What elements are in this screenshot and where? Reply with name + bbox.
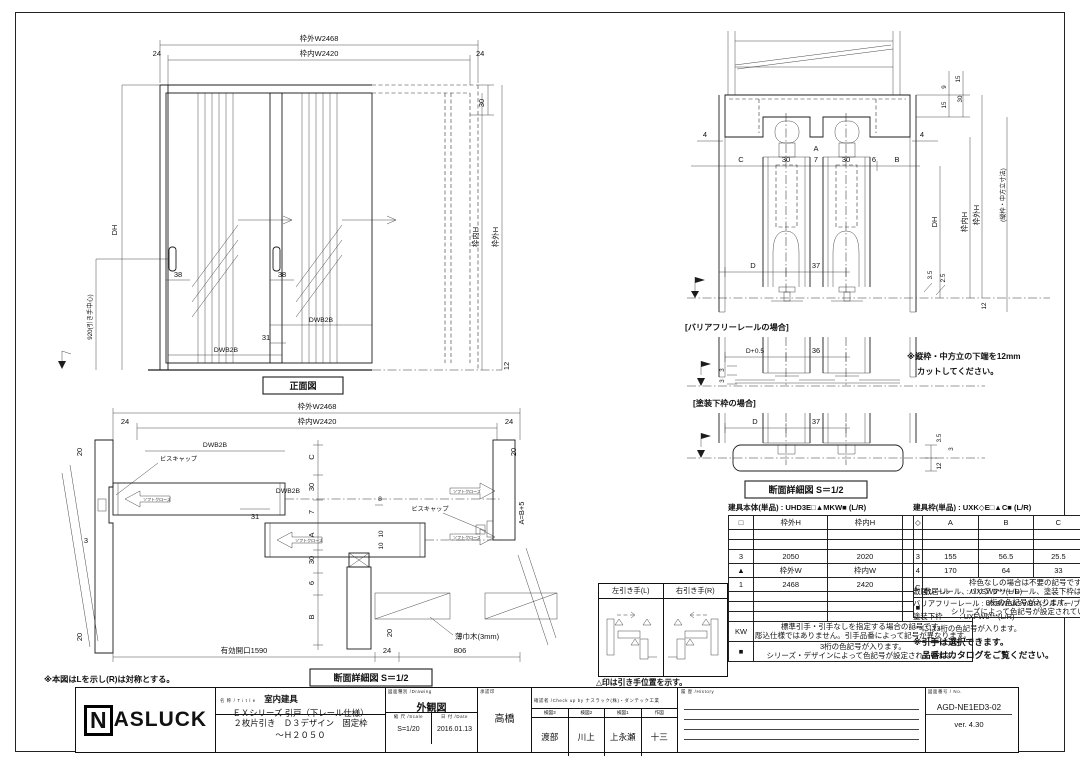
front-pull-center: 920(引き手中心) [86, 294, 94, 339]
handle-box-header: 左引き手(L) 右引き手(R) [599, 584, 727, 599]
front-uchi-h: 枠内H [470, 227, 480, 247]
front-soto-h: 枠外H [490, 227, 500, 247]
plan-outer-width: 枠外W2468 [298, 401, 337, 411]
sec-dim-25: 2.5 [940, 273, 947, 282]
plan-opening: 有効開口1590 [221, 645, 268, 655]
drawing-type-label: 図面種別 /Drawing [386, 688, 477, 695]
sec-dim-12a: 12 [981, 302, 988, 309]
plan-relation: A=B+5 [517, 502, 526, 525]
title-block: NASLUCK 名 称 / T i t l e 室内建具 ＥＸシリーズ 引戸（下… [75, 687, 1019, 753]
sec-note-1: ※縦枠・中方立の下端を12mm [907, 351, 1021, 361]
checkers-cell: 確認者 /Check up by ナスラック(株)・ダンテック工業 検図3 渡部… [532, 688, 678, 752]
history-label: 履 歴 /History [678, 688, 925, 696]
sec-chain-a: A [813, 144, 818, 153]
sec-fl-marker-1 [691, 277, 705, 298]
sec-dim-35b: 3.5 [936, 433, 943, 442]
drawing-sheet: 枠外W2468 枠内W2420 24 24 [0, 0, 1080, 763]
plan-dim-31: 31 [251, 512, 259, 521]
plan-baseboard-label: 薄巾木(3mm) [455, 631, 500, 641]
plan-chain-c: C [307, 454, 316, 460]
handle-position-box: 左引き手(L) 右引き手(R) [598, 583, 728, 677]
handle-right-label: 右引き手(R) [664, 584, 728, 598]
drawing-type-cell: 図面種別 /Drawing 外観図 縮 尺 /Scale S=1/20 日 付 … [386, 688, 478, 752]
plan-10-b: 10 [378, 542, 385, 549]
sec-dim-3a: 3 [719, 368, 726, 372]
logo-cell: NASLUCK [76, 688, 216, 752]
checker-col-2: 検図2 川上 [569, 709, 606, 756]
sec-dim-15b: 15 [955, 75, 962, 82]
sec-dim-15a: 15 [941, 101, 948, 108]
front-left-dims: DH 920(引き手中心) [86, 85, 169, 370]
front-caption: 正面図 [289, 381, 316, 391]
product-height: ～Ｈ２０５０ [220, 729, 381, 741]
handle-diagram-left [599, 599, 664, 676]
front-dim-lines [160, 40, 478, 85]
sec-chain-6: 6 [872, 155, 876, 164]
front-frame [148, 85, 502, 370]
sec-top-structure [728, 31, 900, 95]
sec-dim-d2: D [752, 417, 758, 426]
front-dim-38a: 38 [174, 270, 182, 279]
approval-label: 承認印 [478, 688, 531, 696]
front-dim-24-left: 24 [153, 49, 161, 58]
checker-col-3: 検図3 渡部 [532, 709, 569, 756]
sec-dim-35a: 3.5 [927, 270, 934, 279]
product-category: 室内建具 [264, 694, 298, 704]
approval-cell: 承認印 高橋 [478, 688, 532, 752]
sec-chain-7: 7 [814, 155, 818, 164]
front-dim-31: 31 [262, 333, 270, 342]
frame-col-c: C [1033, 516, 1080, 530]
front-door-panel-1 [166, 93, 282, 363]
logo-n-box: N [84, 705, 113, 736]
plan-dim-3: 3 [84, 536, 88, 545]
frame-col-a: A [922, 516, 978, 530]
front-dim-24-right: 24 [476, 49, 484, 58]
catalog-note: 品番はカタログをご覧ください。 [913, 651, 1080, 660]
scale-cell: 縮 尺 /Scale S=1/20 [386, 713, 432, 744]
plan-20-c: 20 [509, 448, 518, 456]
sec-jambs [719, 95, 916, 312]
body-col-1: 枠外H [754, 516, 828, 530]
plan-softclose-3: ソフトクローズ [453, 488, 481, 494]
sec-chain-b: B [894, 155, 899, 164]
sec-soto-h: 枠外H [971, 205, 981, 225]
sec-chain-30a: 30 [782, 155, 790, 164]
plan-door-1 [113, 483, 285, 515]
scale-value: S=1/20 [386, 726, 431, 733]
sec-chain-30b: 30 [842, 155, 850, 164]
plan-softclose-1: ソフトクローズ [143, 496, 171, 502]
checkers-label: 確認者 /Check up by ナスラック(株)・ダンテック工業 [534, 698, 659, 703]
sec-right-dims [940, 95, 1007, 312]
sec-dim-37a: 37 [812, 261, 820, 270]
drawing-no-cell: 図面番号 / No. AGD-NE1ED3-02 ver. 4.30 [926, 688, 1012, 752]
sec-dim-4-right: 4 [920, 130, 924, 139]
door2-handle [273, 247, 280, 271]
plan-door-2 [265, 523, 425, 557]
sec-dim-37b: 37 [812, 417, 820, 426]
sec-case1-label: [バリアフリーレールの場合] [685, 322, 789, 332]
scale-label: 縮 尺 /Scale [386, 714, 431, 720]
plan-baseboard [375, 593, 557, 635]
product-config: ２枚片引き Ｄ３デザイン 固定枠 [220, 717, 381, 729]
frame-row-3: 315556.5 25.540.5 [914, 550, 1080, 564]
sec-detail2 [687, 337, 985, 386]
plan-center-stile [347, 553, 371, 649]
frame-table-title: 建具枠(単品) : UXK◇E□▲C■ (L/R) [913, 502, 1080, 513]
frame-row-4: 417064 3348 [914, 564, 1080, 578]
drawing-version: ver. 4.30 [926, 720, 1012, 729]
door1-handle [169, 247, 176, 271]
plan-section-view: 枠外W2468 枠内W2420 24 24 20 20 20 3 DWB2B ビ… [30, 395, 575, 695]
name-label: 名 称 / T i t l e [220, 698, 256, 703]
front-outer-width: 枠外W2468 [300, 33, 339, 43]
drawing-number: AGD-NE1ED3-02 [926, 703, 1012, 715]
plan-20-b: 20 [75, 633, 84, 641]
plan-dwb-2: DWB2B [276, 488, 301, 495]
sec-dim-3b: 3 [719, 379, 726, 383]
plan-chain-30b: 30 [307, 556, 316, 564]
plan-chain-7: 7 [307, 510, 316, 514]
sec-caption: 断面詳細図 S＝1/2 [768, 484, 843, 495]
frame-col-sym: ◇ [914, 516, 923, 530]
sec-dim-36: 36 [812, 346, 820, 355]
plan-24-right: 24 [505, 417, 513, 426]
date-cell: 日 付 /Date 2016.01.13 [432, 713, 477, 744]
front-dim-38b: 38 [278, 270, 286, 279]
title-name-cell: 名 称 / T i t l e 室内建具 ＥＸシリーズ 引戸（下レール仕様） ２… [216, 688, 386, 752]
sec-dim-3c: 3 [948, 447, 955, 451]
front-dh-label: DH [110, 225, 119, 236]
sec-dim-d1: D [750, 261, 756, 270]
sec-dim-9: 9 [941, 85, 948, 89]
history-cell: 履 歴 /History [678, 688, 926, 752]
sec-d37-dims [719, 267, 850, 277]
front-elevation-view: 枠外W2468 枠内W2420 24 24 [30, 25, 575, 403]
sec-dim-12b: 12 [936, 462, 943, 469]
front-dim-30: 30 [477, 99, 486, 107]
rail-line-2: バリアフリーレール : UXBW6ASV/BR(シルバー/ブロンズ) [913, 600, 1080, 607]
sec-bottom-rail [687, 287, 1050, 301]
body-col-2: 枠内H [828, 516, 902, 530]
rail-line-3: 塗装下枠 : UXFW6***(L/R) [913, 613, 1080, 620]
front-inner-width: 枠内W2420 [300, 48, 339, 58]
front-right-dims: 30 枠内H 枠外H 12 [470, 85, 511, 370]
plan-right-jamb [476, 440, 556, 645]
rail-line-1: 敷居レール : UXSW6***(L/R) [913, 588, 1080, 595]
sec-chain [691, 161, 920, 171]
plan-20-a: 20 [75, 448, 84, 456]
checker-col-1: 検図1 上永瀬 [605, 709, 642, 756]
front-fl-marker [58, 351, 71, 369]
plan-chain-6: 6 [307, 581, 316, 585]
plan-left-jamb [62, 440, 113, 653]
plan-806: 806 [454, 646, 467, 655]
front-dwb-1: DWB2B [214, 347, 239, 354]
plan-dim-8: 8 [378, 496, 382, 503]
sec-note-2: カットしてください。 [917, 367, 998, 376]
handle-select-note: ※引手は選択できます。 [913, 638, 1080, 647]
handle-left-label: 左引き手(L) [599, 584, 664, 598]
plan-screwcap-1: ビスキャップ [160, 455, 198, 463]
drawing-no-label: 図面番号 / No. [926, 688, 1012, 696]
nasluck-logo: NASLUCK [76, 688, 215, 752]
section-detail-view: 9 15 15 30 4 4 A C 30 7 30 6 B DH 枠内 [675, 25, 1075, 503]
plan-chain-b: B [307, 614, 316, 619]
front-dwb-2: DWB2B [309, 317, 334, 324]
sec-dim-4-left: 4 [703, 130, 707, 139]
plan-24-left: 24 [121, 417, 129, 426]
date-value: 2016.01.13 [432, 726, 477, 733]
handle-diagram-right [664, 599, 728, 676]
plan-dwb-1: DWB2B [203, 442, 228, 449]
drawing-type: 外観図 [386, 699, 477, 714]
plan-20-d: 20 [385, 629, 394, 637]
sec-case2-label: [塗装下枠の場合] [693, 398, 756, 408]
history-lines [678, 696, 925, 744]
plan-chain-a: A [307, 532, 316, 537]
sec-head-jamb [725, 95, 910, 137]
parts-list: 敷居レール : UXSW6***(L/R) バリアフリーレール : UXBW6A… [913, 588, 1080, 665]
sec-tate-label: (縦枠・中方立寸法) [999, 168, 1007, 222]
color-code-note: ***には3桁の色記号が入ります。 [913, 625, 1080, 632]
plan-softclose-4: ソフトクローズ [453, 534, 481, 540]
drafter-col: 作図 十三 [642, 709, 678, 756]
frame-col-b: B [979, 516, 1034, 530]
sec-dim-30: 30 [957, 95, 964, 102]
sec-uchi-h: 枠内H [959, 212, 969, 232]
plan-chain-30a: 30 [307, 483, 316, 491]
sec-chain-c: C [738, 155, 744, 164]
date-label: 日 付 /Date [432, 714, 477, 720]
sec-dh: DH [930, 217, 939, 228]
plan-caption: 断面詳細図 S＝1/2 [333, 672, 408, 683]
plan-inner-width: 枠内W2420 [298, 416, 337, 426]
logo-text: ASLUCK [114, 708, 208, 732]
body-col-sym: □ [729, 516, 754, 530]
approver-name: 高橋 [478, 710, 531, 725]
plan-screwcap-2: ビスキャップ [411, 505, 449, 513]
plan-24-mid: 24 [383, 646, 391, 655]
sec-dim-d05: D+0.5 [746, 348, 765, 355]
plan-note: ※本図はLを示し(R)は対称とする。 [44, 674, 175, 684]
front-dim-12: 12 [502, 362, 511, 370]
plan-10-a: 10 [378, 530, 385, 537]
